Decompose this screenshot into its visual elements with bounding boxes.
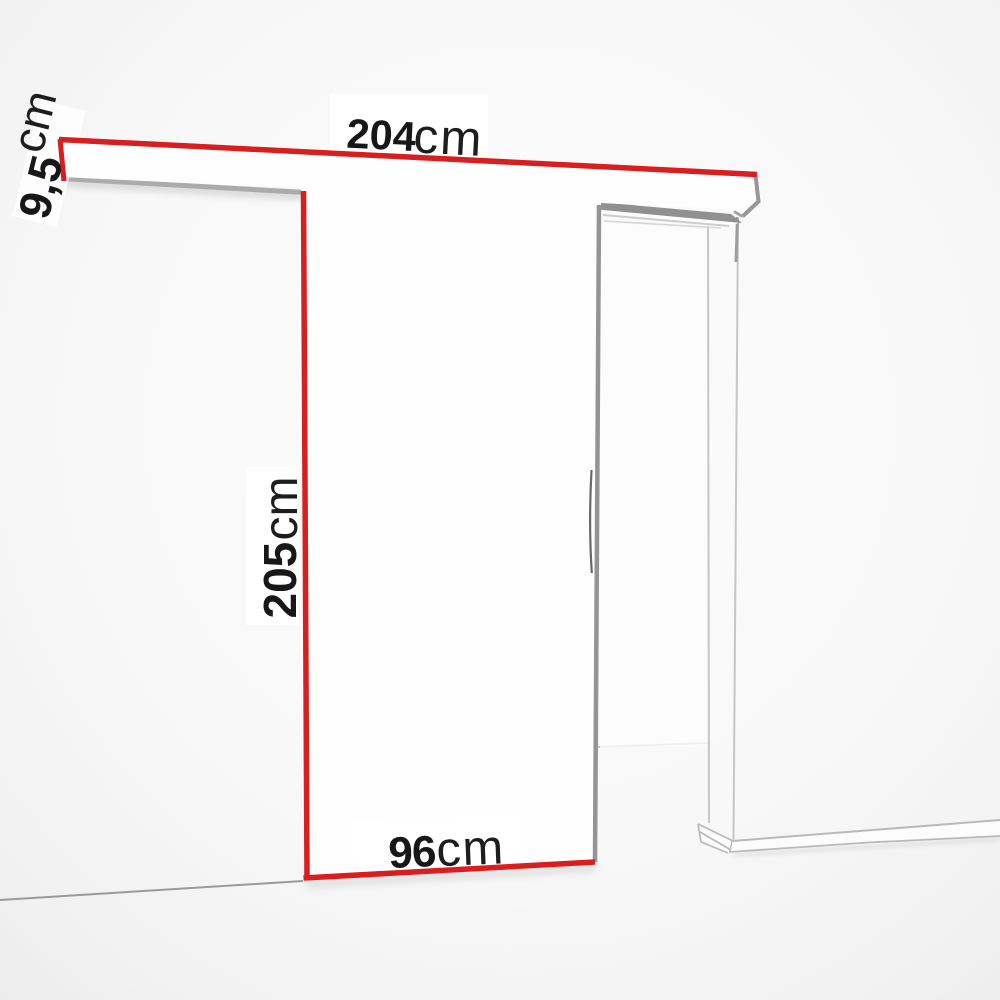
svg-text:96: 96 — [387, 827, 436, 878]
svg-text:204: 204 — [346, 110, 418, 160]
svg-text:205: 205 — [254, 542, 306, 619]
svg-text:cm: cm — [255, 477, 308, 541]
svg-text:cm: cm — [435, 820, 505, 877]
svg-text:cm: cm — [412, 108, 485, 166]
